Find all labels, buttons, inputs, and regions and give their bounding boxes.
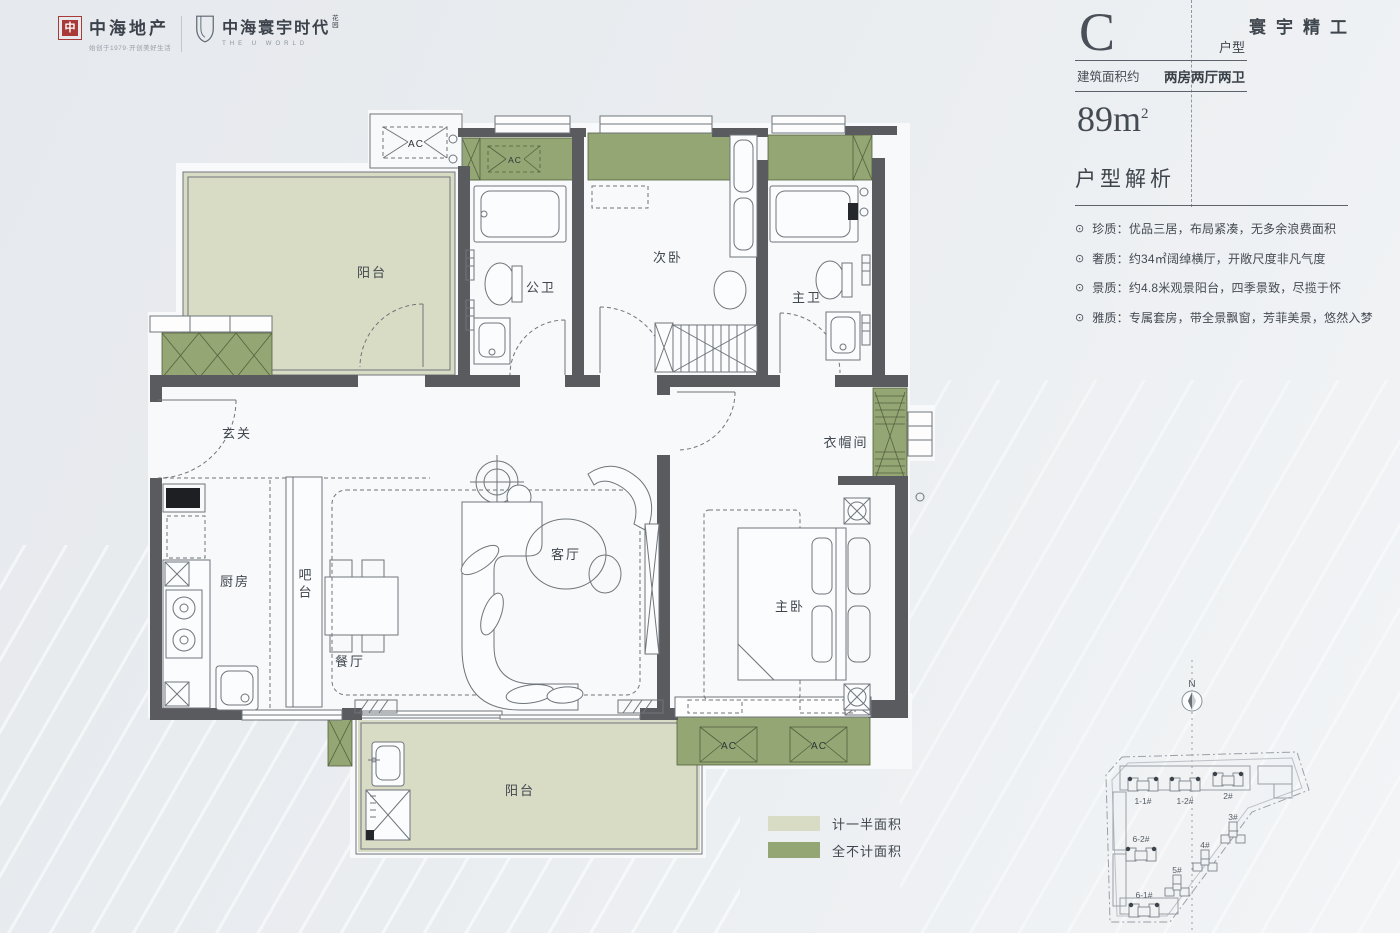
legend-label-excluded-area: 全不计面积 — [832, 844, 902, 859]
floorplan-poster-page: 中 中海地产 始创于1979·开创美好生活 中海寰宇时代 花园 THE U WO… — [0, 0, 1400, 933]
building-label: 6-1# — [1135, 890, 1152, 900]
developer-name: 中海地产 — [89, 14, 171, 39]
room-label-balcony-top: 阳台 — [357, 265, 387, 280]
legend-swatch-excluded-area — [768, 842, 820, 858]
room-label-kitchen: 厨房 — [220, 574, 250, 589]
analysis-block: 户型解析 ⊙ 珍质：优品三居，布局紧凑，无多余浪费面积 ⊙ 奢质：约34㎡阔绰横… — [1075, 163, 1348, 340]
project-logo: 中海寰宇时代 花园 THE U WORLD — [194, 14, 340, 47]
ac-label: AC — [508, 155, 522, 165]
room-label-entry: 玄关 — [222, 426, 252, 441]
developer-logo-mark: 中 — [62, 20, 78, 36]
bottom-balcony-fixtures — [366, 742, 410, 840]
room-label-master-bath: 主卫 — [792, 290, 822, 305]
analysis-bullet: ⊙ 珍质：优品三居，布局紧凑，无多余浪费面积 — [1075, 222, 1348, 237]
building-label: 2# — [1223, 791, 1233, 801]
room-label-balcony-bottom: 阳台 — [505, 783, 535, 798]
unit-letter: C — [1079, 8, 1115, 58]
brand-bar: 中 中海地产 始创于1979·开创美好生活 中海寰宇时代 花园 THE U WO… — [58, 14, 340, 52]
circled-dot-icon: ⊙ — [1075, 281, 1084, 296]
analysis-bullet: ⊙ 奢质：约34㎡阔绰横厅，开敞尺度非凡气度 — [1075, 252, 1348, 267]
area-sup: 2 — [1141, 106, 1149, 122]
room-label-bar: 吧台 — [297, 568, 312, 602]
project-subtitle: THE U WORLD — [222, 41, 340, 47]
building-label: 4# — [1200, 840, 1210, 850]
room-label-second-bedroom: 次卧 — [653, 250, 683, 265]
ac-label: AC — [721, 741, 737, 752]
building-label: 3# — [1228, 812, 1238, 822]
ac-label: AC — [811, 741, 827, 752]
north-label: N — [1188, 679, 1195, 690]
site-plan: N 1-1# 1-2# 2# 3# 4# 5# 6- — [1085, 655, 1350, 933]
building-label: 6-2# — [1132, 834, 1149, 844]
legend-swatch-half-area — [768, 816, 820, 831]
unit-type-label: 户型 — [1219, 37, 1245, 58]
building-label: 1-1# — [1134, 796, 1151, 806]
project-name-suffix: 花园 — [332, 15, 340, 29]
developer-logo-icon: 中 — [58, 16, 82, 40]
brand-divider — [181, 16, 182, 52]
room-label-cloakroom: 衣帽间 — [823, 435, 868, 450]
room-label-living: 客厅 — [551, 547, 581, 562]
building-label: 5# — [1172, 865, 1182, 875]
circled-dot-icon: ⊙ — [1075, 311, 1084, 326]
unit-info-block: C 户型 建筑面积约 两房两厅两卫 89m2 — [1075, 8, 1247, 140]
shield-u-icon — [194, 14, 216, 44]
floorplan-drawing: AC AC AC AC — [140, 100, 950, 875]
legend: 计一半面积 全不计面积 — [768, 816, 902, 859]
analysis-bullet: ⊙ 景质：约4.8米观景阳台，四季景致，尽揽于怀 — [1075, 281, 1348, 296]
ac-label: AC — [408, 139, 424, 150]
circled-dot-icon: ⊙ — [1075, 222, 1084, 237]
area-value: 89m2 — [1075, 92, 1247, 140]
legend-label-half-area: 计一半面积 — [832, 817, 902, 832]
analysis-bullet: ⊙ 雅质：专属套房，带全景飘窗，芳菲美景，悠然入梦 — [1075, 311, 1348, 326]
developer-tagline: 始创于1979·开创美好生活 — [89, 42, 171, 52]
layout-label: 两房两厅两卫 — [1164, 66, 1245, 86]
circled-dot-icon: ⊙ — [1075, 252, 1084, 267]
analysis-title: 户型解析 — [1075, 163, 1348, 193]
craft-slogan: 寰宇精工 — [1249, 13, 1357, 38]
room-label-dining: 餐厅 — [335, 654, 365, 669]
room-label-master-bedroom: 主卧 — [775, 599, 805, 614]
project-name: 中海寰宇时代 — [222, 14, 330, 38]
area-label: 建筑面积约 — [1077, 66, 1140, 85]
analysis-rule — [1075, 205, 1348, 206]
building-label: 1-2# — [1176, 796, 1193, 806]
site-buildings: 1-1# 1-2# 2# 3# 4# 5# 6-2# 6-1# — [1126, 772, 1245, 917]
room-label-public-bath: 公卫 — [526, 280, 556, 295]
